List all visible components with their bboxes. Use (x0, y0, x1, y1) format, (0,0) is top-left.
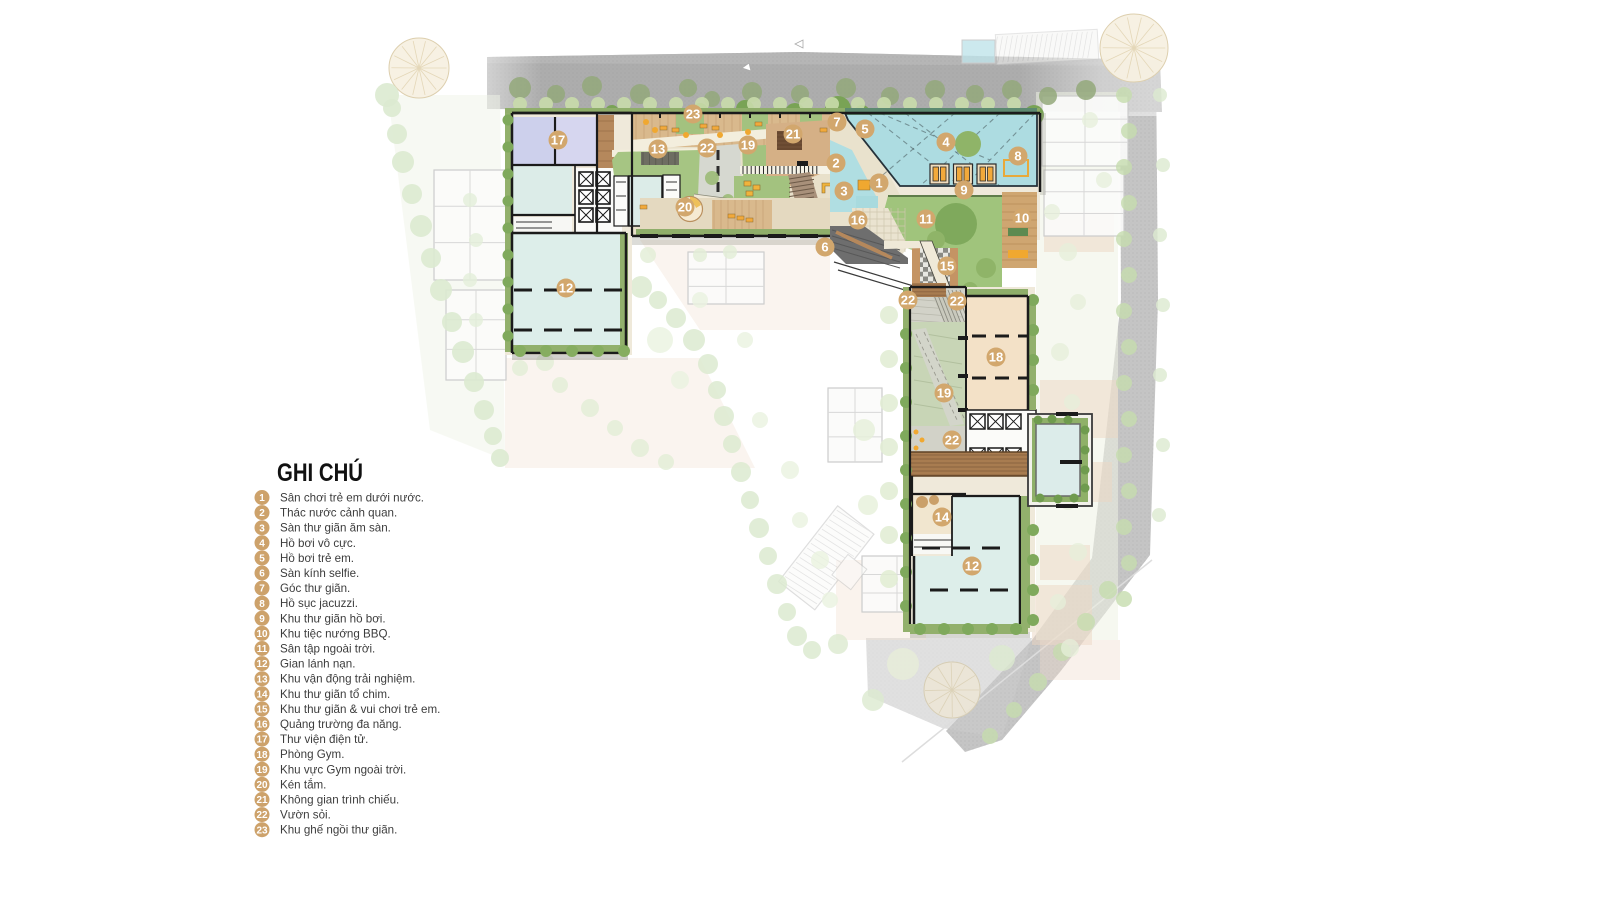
svg-text:Hồ bơi trẻ em.: Hồ bơi trẻ em. (280, 552, 354, 565)
svg-text:8: 8 (259, 599, 265, 610)
svg-text:17: 17 (256, 735, 268, 746)
svg-text:GHI CHÚ: GHI CHÚ (277, 457, 363, 487)
svg-text:14: 14 (256, 689, 268, 700)
svg-text:4: 4 (259, 538, 265, 549)
svg-text:Khu thư giãn tổ chim.: Khu thư giãn tổ chim. (280, 688, 390, 701)
svg-text:Khu ghế ngồi thư giãn.: Khu ghế ngồi thư giãn. (280, 824, 397, 837)
svg-text:Sân tập ngoài trời.: Sân tập ngoài trời. (280, 643, 375, 656)
svg-text:3: 3 (259, 523, 265, 534)
svg-text:3: 3 (840, 184, 847, 199)
svg-text:13: 13 (651, 142, 665, 157)
svg-text:Khu thư giãn & vui chơi trẻ em: Khu thư giãn & vui chơi trẻ em. (280, 703, 440, 716)
svg-text:9: 9 (960, 183, 967, 198)
svg-text:18: 18 (256, 750, 268, 761)
svg-text:22: 22 (950, 294, 964, 309)
svg-text:2: 2 (259, 508, 265, 519)
svg-text:23: 23 (686, 107, 700, 122)
svg-text:6: 6 (821, 240, 828, 255)
svg-text:19: 19 (937, 386, 951, 401)
svg-text:16: 16 (851, 213, 865, 228)
svg-text:22: 22 (945, 433, 959, 448)
svg-text:23: 23 (256, 825, 268, 836)
svg-text:Sân chơi trẻ em dưới nước.: Sân chơi trẻ em dưới nước. (280, 492, 424, 505)
svg-text:Gian lánh nạn.: Gian lánh nạn. (280, 658, 355, 671)
svg-text:7: 7 (833, 115, 840, 130)
svg-text:11: 11 (919, 212, 933, 227)
svg-text:5: 5 (861, 122, 868, 137)
svg-text:Không gian trình chiếu.: Không gian trình chiếu. (280, 794, 399, 807)
svg-text:21: 21 (786, 127, 800, 142)
svg-text:12: 12 (256, 659, 268, 670)
svg-text:2: 2 (832, 156, 839, 171)
svg-text:12: 12 (559, 281, 573, 296)
svg-text:17: 17 (551, 133, 565, 148)
svg-text:12: 12 (965, 559, 979, 574)
svg-text:18: 18 (989, 350, 1003, 365)
svg-text:Khu vực Gym ngoài trời.: Khu vực Gym ngoài trời. (280, 763, 406, 776)
svg-text:6: 6 (259, 569, 265, 580)
svg-text:19: 19 (741, 138, 755, 153)
svg-text:Thác nước cảnh quan.: Thác nước cảnh quan. (280, 507, 397, 520)
svg-text:Vườn sỏi.: Vườn sỏi. (280, 809, 331, 822)
svg-text:15: 15 (256, 705, 268, 716)
svg-text:Thư viện điện tử.: Thư viện điện tử. (280, 733, 368, 746)
svg-text:22: 22 (256, 810, 268, 821)
svg-text:15: 15 (940, 259, 954, 274)
svg-text:11: 11 (257, 644, 268, 655)
svg-text:Khu vận động trải nghiệm.: Khu vận động trải nghiệm. (280, 673, 415, 686)
svg-text:Khu thư giãn hồ bơi.: Khu thư giãn hồ bơi. (280, 612, 386, 625)
svg-text:22: 22 (700, 141, 714, 156)
svg-text:9: 9 (259, 614, 265, 625)
svg-text:16: 16 (256, 720, 268, 731)
svg-text:Quảng trường đa năng.: Quảng trường đa năng. (280, 718, 402, 731)
svg-text:13: 13 (256, 674, 268, 685)
svg-text:19: 19 (256, 765, 268, 776)
svg-text:Khu tiệc nướng BBQ.: Khu tiệc nướng BBQ. (280, 627, 391, 640)
svg-text:Sàn kính selfie.: Sàn kính selfie. (280, 567, 359, 580)
svg-text:Kén tắm.: Kén tắm. (280, 778, 326, 791)
svg-text:20: 20 (678, 200, 692, 215)
svg-text:Góc thư giãn.: Góc thư giãn. (280, 582, 350, 595)
svg-text:Hồ sục jacuzzi.: Hồ sục jacuzzi. (280, 597, 358, 610)
svg-text:Phòng Gym.: Phòng Gym. (280, 748, 344, 761)
svg-text:1: 1 (875, 176, 882, 191)
svg-text:8: 8 (1014, 149, 1021, 164)
svg-text:5: 5 (259, 554, 265, 565)
svg-text:22: 22 (901, 293, 915, 308)
svg-text:21: 21 (256, 795, 268, 806)
svg-text:10: 10 (1015, 211, 1029, 226)
svg-text:Hồ bơi vô cực.: Hồ bơi vô cực. (280, 537, 356, 550)
svg-text:1: 1 (259, 493, 265, 504)
svg-text:20: 20 (256, 780, 268, 791)
svg-text:10: 10 (256, 629, 268, 640)
svg-text:14: 14 (935, 510, 950, 525)
svg-text:4: 4 (942, 135, 950, 150)
svg-text:7: 7 (259, 584, 265, 595)
svg-text:Sàn thư giãn ăm sàn.: Sàn thư giãn ăm sàn. (280, 522, 391, 535)
